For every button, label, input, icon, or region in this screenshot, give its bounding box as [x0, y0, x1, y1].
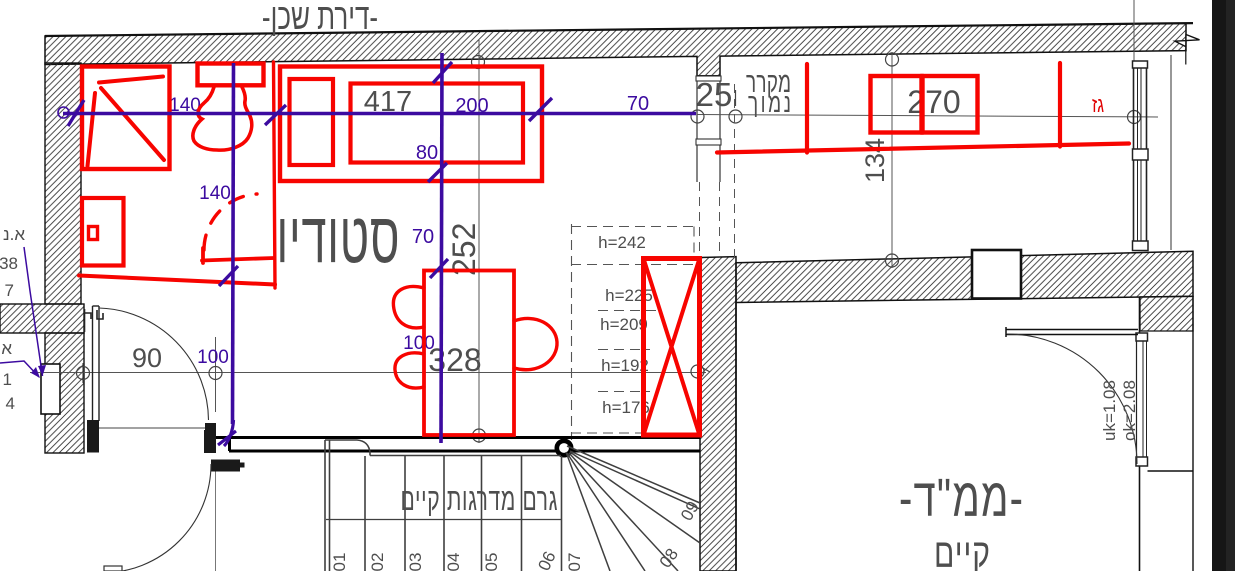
svg-text:-דירת שכן-: -דירת שכן-: [262, 0, 378, 37]
svg-text:גז: גז: [1092, 94, 1104, 118]
svg-text:38: 38: [0, 254, 18, 273]
svg-text:קיים: קיים: [934, 531, 990, 571]
svg-text:270: 270: [907, 84, 960, 120]
svg-text:90: 90: [132, 343, 162, 373]
svg-text:א.נ: א.נ: [3, 225, 25, 244]
svg-text:140: 140: [199, 183, 231, 204]
svg-text:נמוך: נמוך: [748, 88, 791, 118]
svg-text:1: 1: [3, 370, 12, 389]
svg-text:134: 134: [860, 138, 890, 183]
svg-text:גרם מדרגות קיים: גרם מדרגות קיים: [401, 482, 558, 517]
svg-text:ok=2.08: ok=2.08: [1120, 380, 1139, 441]
svg-text:סטודיו: סטודיו: [277, 197, 400, 277]
svg-text:h=242: h=242: [598, 233, 646, 252]
svg-text:h=209: h=209: [600, 315, 648, 334]
svg-text:252: 252: [446, 223, 482, 276]
svg-text:04: 04: [444, 553, 463, 571]
svg-text:uk=1.08: uk=1.08: [1100, 380, 1119, 441]
svg-text:7: 7: [5, 281, 14, 300]
svg-text:100: 100: [403, 333, 435, 354]
svg-text:100: 100: [197, 347, 229, 368]
svg-text:א: א: [1, 339, 12, 358]
svg-text:01: 01: [330, 553, 349, 571]
svg-text:25: 25: [696, 76, 733, 113]
svg-text:03: 03: [406, 553, 425, 571]
svg-text:70: 70: [412, 226, 434, 248]
svg-text:05: 05: [482, 553, 501, 571]
svg-text:02: 02: [368, 553, 387, 571]
svg-text:328: 328: [428, 342, 481, 378]
svg-text:-ממ"ד-: -ממ"ד-: [899, 468, 1023, 528]
svg-text:4: 4: [6, 394, 15, 413]
svg-text:07: 07: [565, 553, 584, 571]
